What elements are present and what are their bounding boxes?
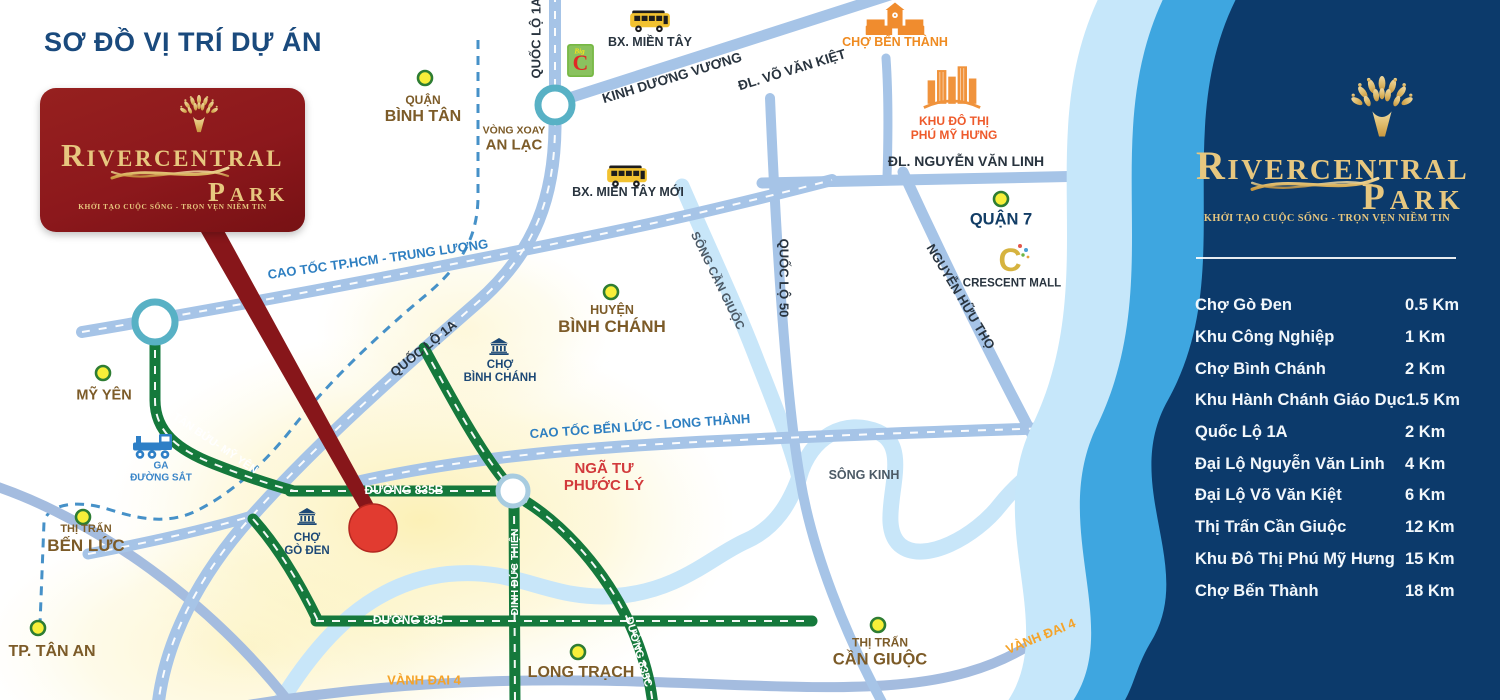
label-line: THỊ TRẤN [833,637,927,651]
distance-value: 4 Km [1405,455,1461,474]
dot-tan-an [31,621,45,635]
ben-thanh-market-icon [866,2,925,35]
distance-row: Thị Trấn Cần Giuộc 12 Km [1195,512,1461,544]
label-line: BÌNH TÂN [385,108,461,126]
road-nguyen-van-linh [762,176,1092,183]
label-quoc-lo-1a-top: QUỐC LỘ 1A [530,0,545,78]
distance-name: Chợ Gò Đen [1195,296,1292,315]
label-line: PHƯỚC LÝ [564,477,644,494]
distance-row: Chợ Bình Chánh 2 Km [1195,353,1461,385]
dot-long-trach [571,645,585,659]
label-vanh-dai-4-left: VÀNH ĐAI 4 [387,674,461,689]
dot-can-giuoc [871,618,885,632]
location-map-poster: Big C C [0,0,1500,700]
sidebar-tagline: KHỞI TẠO CUỘC SỐNG - TRỌN VẸN NIỀM TIN [1196,213,1458,224]
label-phu-my-hung: KHU ĐÔ THỊ PHÚ MỸ HƯNG [911,115,998,143]
distance-row: Khu Hành Chánh Giáo Dục 1.5 Km [1195,385,1461,417]
label-line: THỊ TRẤN [47,523,124,536]
distance-value: 6 Km [1405,486,1461,505]
west-roundabout [135,302,175,342]
distance-value: 1.5 Km [1406,391,1462,410]
label-nguyen-van-linh: ĐL. NGUYỄN VĂN LINH [888,153,1044,169]
phuoc-ly-junction [498,476,528,506]
label-tp-tan-an: TP. TÂN AN [8,643,95,661]
label-quan-7: QUẬN 7 [970,211,1032,230]
distance-name: Khu Hành Chánh Giáo Dục [1195,391,1406,410]
label-my-yen: MỸ YÊN [76,388,131,405]
brand-tagline: KHỞI TẠO CUỘC SỐNG - TRỌN VẸN NIỀM TIN [40,202,305,211]
project-marker [349,504,397,552]
label-line: ĐƯỜNG SẮT [130,472,192,484]
label-line: BÌNH CHÁNH [464,372,537,385]
label-line: NGÃ TƯ [564,460,644,477]
distance-value: 2 Km [1405,423,1461,442]
distance-name: Quốc Lộ 1A [1195,423,1288,442]
label-line: VÒNG XOAY [483,124,546,136]
label-line: HUYỆN [558,303,666,317]
distance-row: Chợ Gò Đen 0.5 Km [1195,290,1461,322]
label-song-kinh: SÔNG KINH [829,468,900,482]
sidebar-divider [1196,257,1456,259]
label-huyen-binh-chanh: HUYỆN BÌNH CHÁNH [558,303,666,337]
label-ben-luc: THỊ TRẤN BẾN LỨC [47,523,124,555]
distance-name: Khu Công Nghiệp [1195,328,1334,347]
dot-ben-luc [76,510,90,524]
label-nga-tu-phuoc-ly: NGÃ TƯ PHƯỚC LÝ [564,460,644,495]
distance-row: Chợ Bến Thành 18 Km [1195,575,1461,607]
label-vong-xoay-an-lac: VÒNG XOAY AN LẠC [483,124,546,153]
dot-my-yen [96,366,110,380]
distance-name: Khu Đô Thị Phú Mỹ Hưng [1195,550,1395,569]
label-cho-binh-chanh: CHỢ BÌNH CHÁNH [464,359,537,385]
label-quan-binh-tan: QUẬN BÌNH TÂN [385,94,461,126]
bigc-supermarket-icon [567,44,594,77]
project-logo-card: RIVERCENTRAL PARK KHỞI TẠO CUỘC SỐNG - T… [40,88,305,232]
dot-quan-7 [994,192,1008,206]
label-line: AN LẠC [483,136,546,153]
label-cho-go-den: CHỢ GÒ ĐEN [284,532,329,558]
sidebar-tree-icon [1344,76,1420,138]
distance-value: 18 Km [1405,582,1461,601]
label-can-giuoc: THỊ TRẤN CẦN GIUỘC [833,637,927,670]
page-title: SƠ ĐỒ VỊ TRÍ DỰ ÁN [44,27,322,58]
bus-station-icon [630,11,670,33]
distance-name: Chợ Bình Chánh [1195,360,1326,379]
label-bx-mien-tay-moi: BX. MIỀN TÂY MỚI [572,185,684,199]
distance-value: 0.5 Km [1405,296,1461,315]
distance-value: 1 Km [1405,328,1461,347]
distance-name: Thị Trấn Cần Giuộc [1195,518,1346,537]
label-line: PHÚ MỸ HƯNG [911,129,998,143]
label-line: CẦN GIUỘC [833,650,927,669]
label-crescent-mall: CRESCENT MALL [963,277,1061,290]
label-duong-835b: ĐƯỜNG 835B [365,484,444,498]
label-ga-duong-sat: GA ĐƯỜNG SẮT [130,461,192,484]
distance-value: 15 Km [1405,550,1461,569]
distance-row: Khu Công Nghiệp 1 Km [1195,322,1461,354]
distance-row: Đại Lộ Võ Văn Kiệt 6 Km [1195,480,1461,512]
crescent-mall-icon [998,242,1029,278]
distance-row: Quốc Lộ 1A 2 Km [1195,417,1461,449]
label-line: KHU ĐÔ THỊ [911,115,998,129]
label-quoc-lo-50: QUỐC LỘ 50 [776,239,791,318]
label-line: QUẬN [385,94,461,108]
label-dinh-duc-thien: ĐINH ĐỨC THIỆN [509,529,521,616]
distance-name: Chợ Bến Thành [1195,582,1319,601]
distance-list: Chợ Gò Đen 0.5 Km Khu Công Nghiệp 1 Km C… [1195,290,1461,607]
distance-name: Đại Lộ Nguyễn Văn Linh [1195,455,1385,474]
label-line: CHỢ [284,532,329,545]
label-line: CHỢ [464,359,537,372]
distance-row: Khu Đô Thị Phú Mỹ Hưng 15 Km [1195,544,1461,576]
distance-name: Đại Lộ Võ Văn Kiệt [1195,486,1342,505]
label-line: GÒ ĐEN [284,545,329,558]
distance-row: Đại Lộ Nguyễn Văn Linh 4 Km [1195,448,1461,480]
distance-value: 2 Km [1405,360,1461,379]
distance-value: 12 Km [1405,518,1461,537]
phu-my-hung-skyline-icon [924,66,980,107]
an-lac-roundabout [538,88,572,122]
label-duong-835: ĐƯỜNG 835 [373,614,443,628]
label-bx-mien-tay: BX. MIỀN TÂY [608,35,692,49]
label-cho-ben-thanh: CHỢ BẾN THÀNH [842,35,948,49]
label-long-trach: LONG TRẠCH [528,664,635,682]
label-line: GA [130,461,192,473]
logo-tree-icon [179,94,219,134]
dot-quan-binh-tan [418,71,432,85]
label-line: BÌNH CHÁNH [558,317,666,337]
dot-huyen-binh-chanh [604,285,618,299]
label-line: BẾN LỨC [47,536,124,556]
